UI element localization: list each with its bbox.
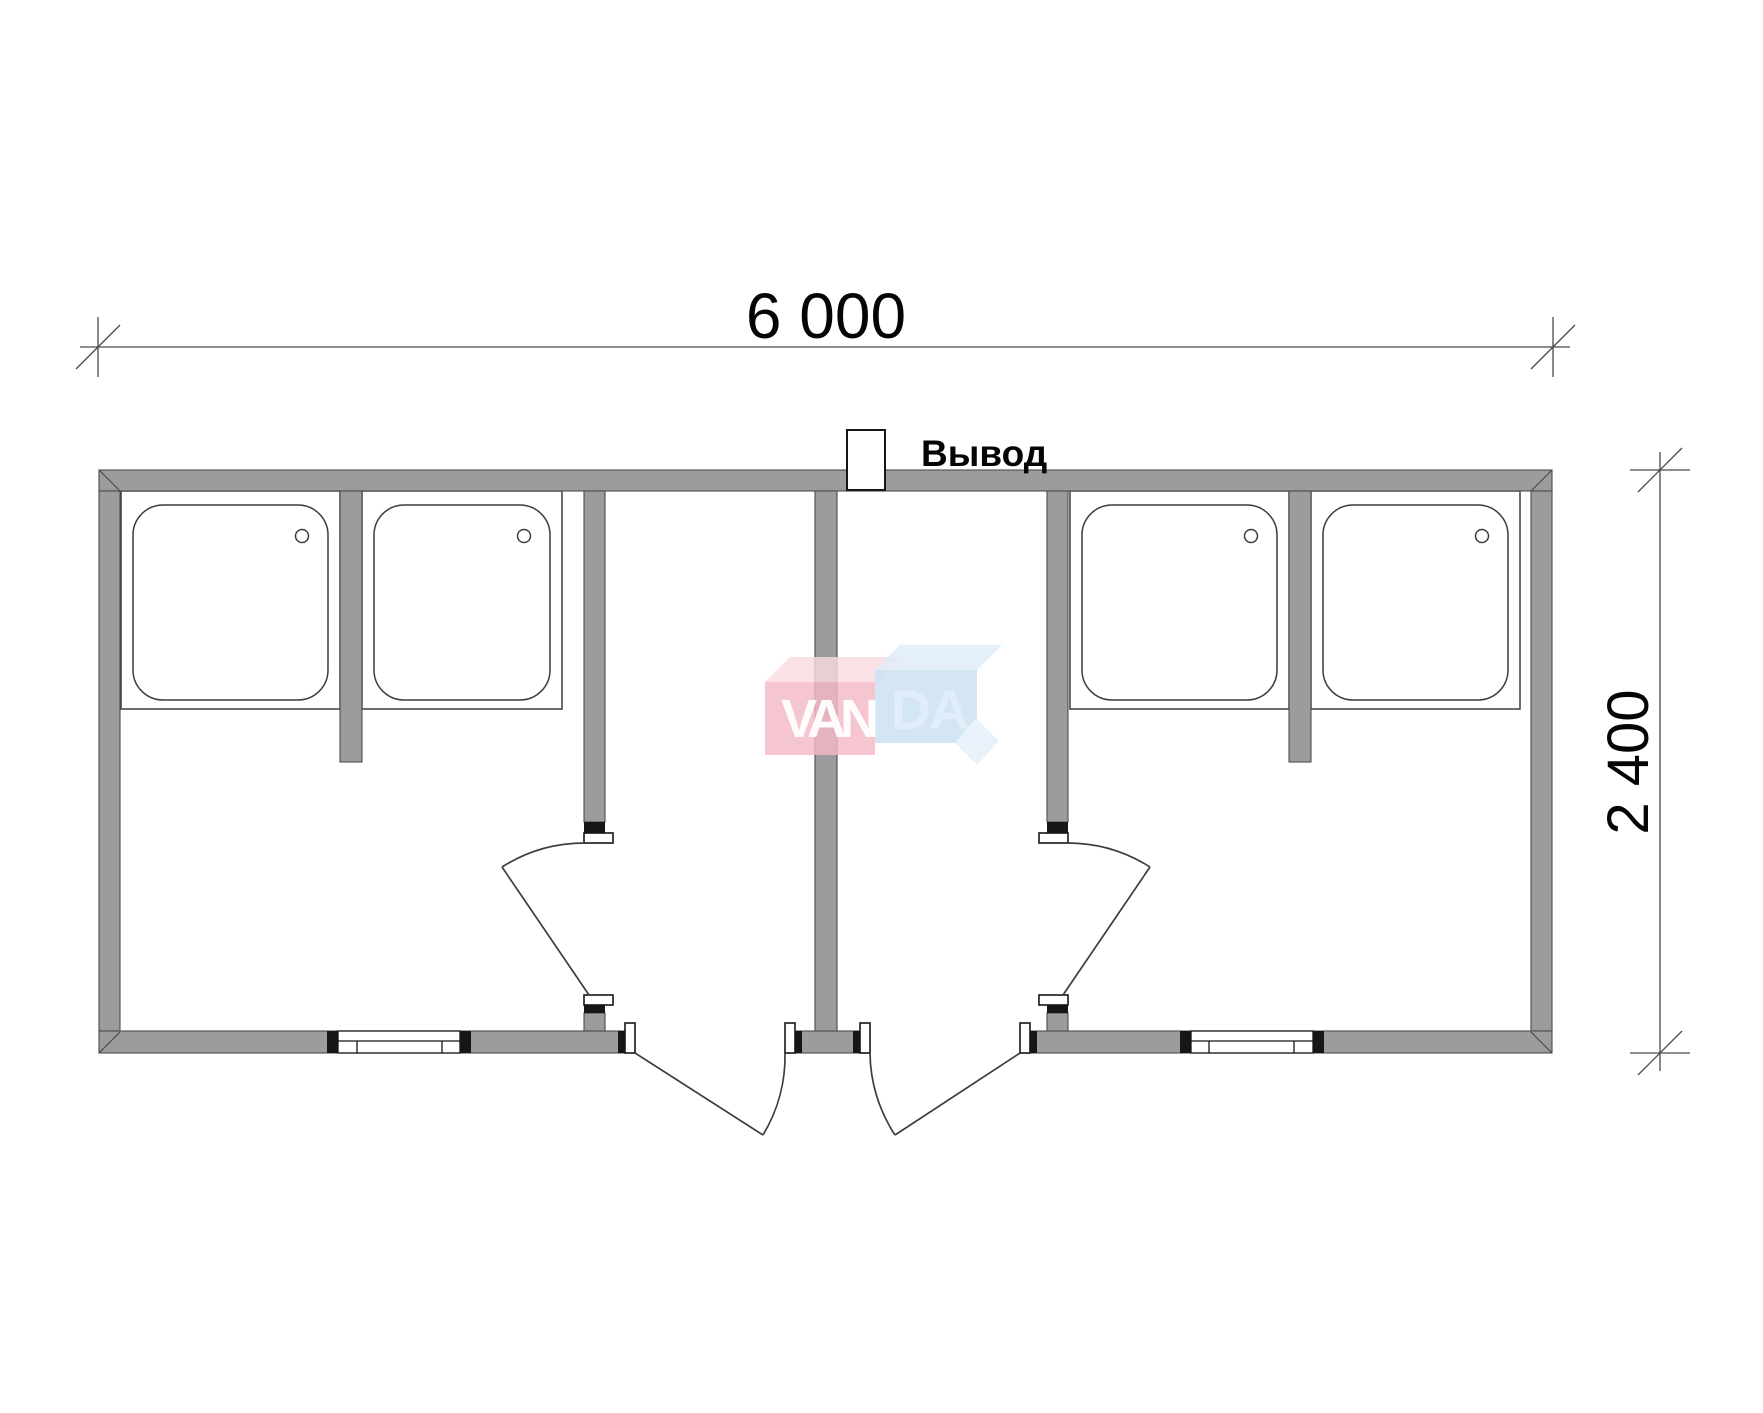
drain-icon [518, 530, 531, 543]
drain-icon [296, 530, 309, 543]
wall-tray-divider-right [1289, 491, 1311, 762]
logo-blue-box-top [875, 645, 1002, 670]
wall-right-room-partition [1047, 491, 1068, 822]
shower-tray [1082, 505, 1277, 700]
dimension-height: 2 400 [1596, 448, 1690, 1075]
window-cap [460, 1031, 471, 1053]
outlet-box [847, 430, 885, 490]
interior-door-left [502, 843, 589, 995]
wall-cap [618, 1031, 625, 1053]
door-swing-arc [502, 843, 584, 867]
wall-center-partition [815, 491, 837, 1031]
door-swing-arc [1068, 843, 1150, 867]
watermark-logo: VAN DA [765, 645, 1002, 765]
door-swing-arc [763, 1053, 785, 1135]
dimension-height-label: 2 400 [1596, 689, 1661, 834]
entrance-door-right [870, 1053, 1020, 1135]
wall-right-room-partition-stub [1047, 1013, 1068, 1031]
door-jamb [625, 1023, 635, 1053]
door-swing-arc [870, 1053, 895, 1135]
wall-cap [795, 1031, 802, 1053]
wall-tray-divider-left [340, 491, 362, 762]
door-leaf [635, 1053, 763, 1135]
logo-text-left: VAN [781, 689, 876, 749]
wall-cap [584, 822, 605, 833]
door-jamb [584, 833, 613, 843]
window [338, 1031, 460, 1053]
wall-left [99, 491, 120, 1031]
interior-door-right [1063, 843, 1150, 995]
shower-tray [374, 505, 550, 700]
wall-cap [853, 1031, 860, 1053]
outlet-label: Вывод [921, 433, 1047, 474]
wall-left-room-partition [584, 491, 605, 822]
wall-cap [1047, 822, 1068, 833]
dimension-width-label: 6 000 [746, 280, 906, 352]
shower-tray [133, 505, 328, 700]
wall-top [99, 470, 1552, 491]
window-cap [327, 1031, 338, 1053]
door-leaf [895, 1053, 1020, 1135]
door-leaf [1063, 867, 1150, 995]
wall-left-room-partition-stub [584, 1013, 605, 1031]
wall-right [1531, 491, 1552, 1031]
window [1191, 1031, 1313, 1053]
shower-tray [1323, 505, 1508, 700]
door-jamb [1039, 995, 1068, 1005]
wall-cap [1047, 1005, 1068, 1013]
door-jamb [1039, 833, 1068, 843]
entrance-door-left [635, 1053, 785, 1135]
logo-text-right: DA [891, 678, 968, 741]
drain-icon [1245, 530, 1258, 543]
door-jamb [1020, 1023, 1030, 1053]
window-cap [1313, 1031, 1324, 1053]
door-jamb [785, 1023, 795, 1053]
door-jamb [584, 995, 613, 1005]
wall-cap [1030, 1031, 1037, 1053]
wall-cap [584, 1005, 605, 1013]
window-cap [1180, 1031, 1191, 1053]
door-leaf [502, 867, 589, 995]
wall-bottom-center [795, 1031, 860, 1053]
floor-plan-drawing: Вывод VAN DA 6 000 2 400 [0, 0, 1763, 1413]
drain-icon [1476, 530, 1489, 543]
door-jamb [860, 1023, 870, 1053]
dimension-width: 6 000 [76, 280, 1575, 377]
